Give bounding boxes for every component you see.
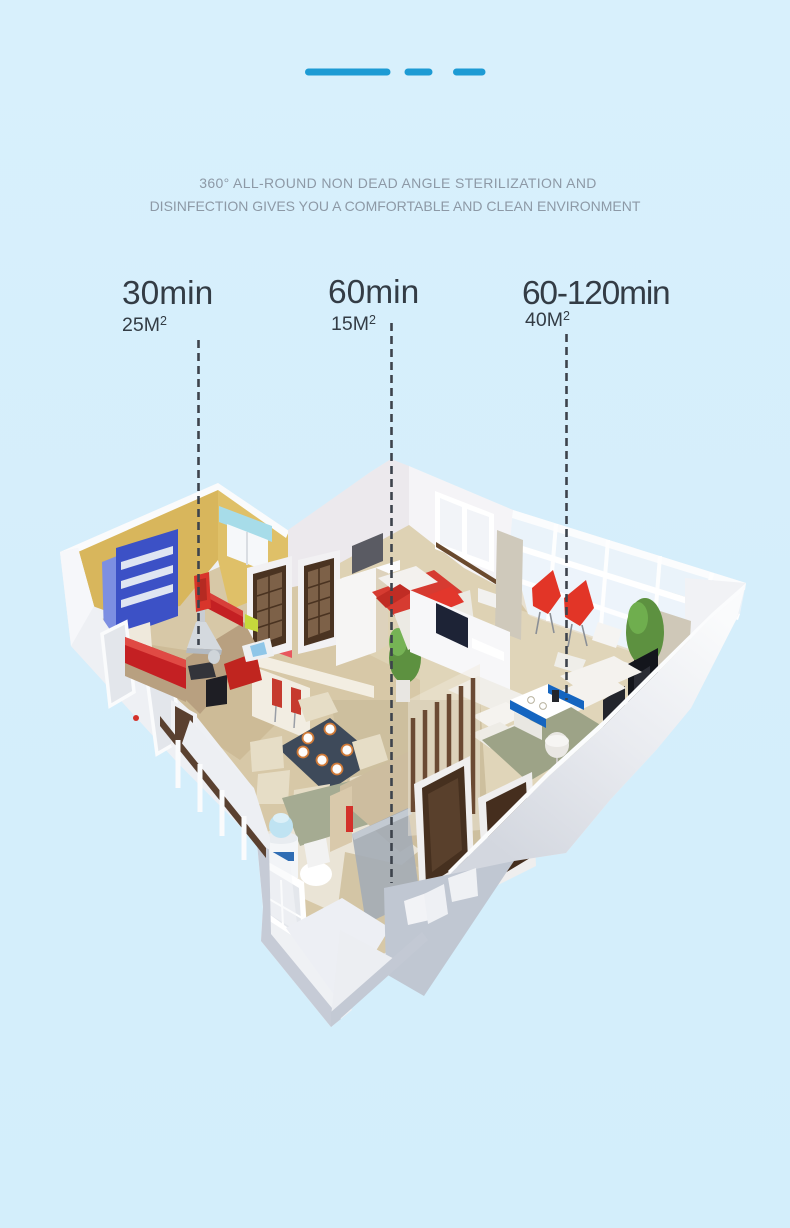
svg-text:30min: 30min [122,275,213,312]
svg-text:60-120min: 60-120min [522,275,670,312]
svg-text:60min: 60min [328,274,419,311]
svg-text:DISINFECTION GIVES YOU A COMFO: DISINFECTION GIVES YOU A COMFORTABLE AND… [150,198,641,214]
svg-text:360° ALL-ROUND NON DEAD ANGLE: 360° ALL-ROUND NON DEAD ANGLE STERILIZAT… [199,175,597,191]
